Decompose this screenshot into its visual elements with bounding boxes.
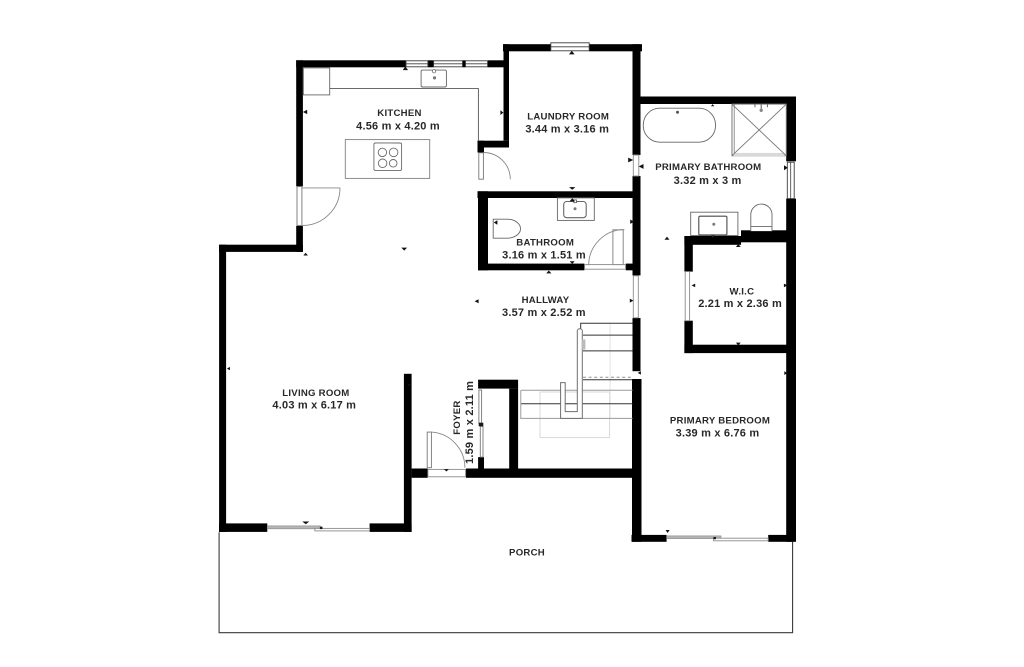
- svg-text:4.03 m x 6.17 m: 4.03 m x 6.17 m: [272, 399, 356, 411]
- svg-text:LIVING ROOM: LIVING ROOM: [282, 388, 349, 399]
- svg-text:2.21 m x 2.36 m: 2.21 m x 2.36 m: [698, 298, 782, 310]
- svg-text:3.39 m x 6.76 m: 3.39 m x 6.76 m: [676, 427, 760, 439]
- svg-text:HALLWAY: HALLWAY: [522, 295, 570, 306]
- svg-text:PRIMARY BEDROOM: PRIMARY BEDROOM: [670, 415, 770, 426]
- svg-text:3.44 m x 3.16 m: 3.44 m x 3.16 m: [525, 123, 609, 135]
- svg-text:LAUNDRY ROOM: LAUNDRY ROOM: [527, 111, 609, 122]
- svg-text:3.32 m x 3 m: 3.32 m x 3 m: [674, 175, 742, 187]
- svg-text:PRIMARY BATHROOM: PRIMARY BATHROOM: [655, 162, 761, 173]
- svg-text:BATHROOM: BATHROOM: [516, 238, 574, 249]
- svg-text:4.56 m x 4.20 m: 4.56 m x 4.20 m: [356, 120, 440, 132]
- svg-text:PORCH: PORCH: [509, 547, 545, 558]
- svg-text:3.16 m x 1.51 m: 3.16 m x 1.51 m: [502, 249, 586, 261]
- svg-text:KITCHEN: KITCHEN: [377, 108, 421, 119]
- svg-text:1.59 m x 2.11 m: 1.59 m x 2.11 m: [464, 381, 476, 464]
- svg-text:3.57 m x 2.52 m: 3.57 m x 2.52 m: [502, 307, 586, 319]
- svg-text:W.I.C: W.I.C: [730, 287, 755, 298]
- svg-text:FOYER: FOYER: [452, 400, 463, 434]
